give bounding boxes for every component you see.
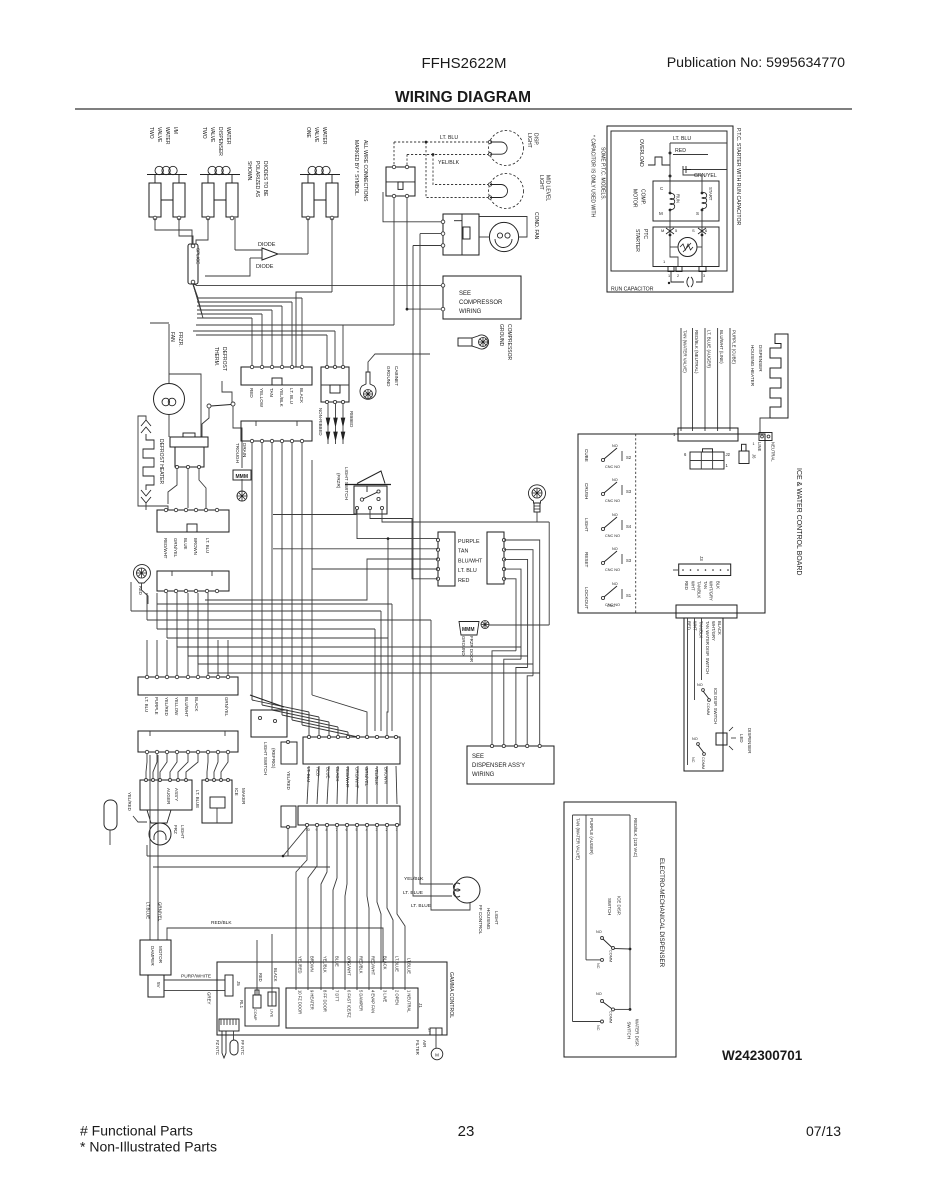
svg-text:LT. BLU: LT. BLU bbox=[144, 697, 149, 712]
svg-text:LINE: LINE bbox=[757, 442, 762, 452]
svg-text:TAN/BLK: TAN/BLK bbox=[699, 621, 704, 638]
svg-text:LIGHT SWITCH: LIGHT SWITCH bbox=[263, 742, 268, 775]
svg-text:RED/WHT: RED/WHT bbox=[163, 538, 168, 559]
svg-text:DISPENSER: DISPENSER bbox=[758, 345, 763, 372]
svg-text:LT. BLU: LT. BLU bbox=[289, 388, 294, 404]
svg-text:* Non-Illustrated Parts: * Non-Illustrated Parts bbox=[80, 1139, 217, 1155]
svg-text:DRAIN: DRAIN bbox=[242, 443, 247, 457]
svg-text:ORG/WHT: ORG/WHT bbox=[347, 956, 352, 976]
svg-text:FFHS2622M: FFHS2622M bbox=[421, 55, 506, 72]
svg-text:THERM.: THERM. bbox=[213, 347, 219, 366]
svg-text:COMM: COMM bbox=[609, 950, 613, 962]
svg-text:POLARIZED AS: POLARIZED AS bbox=[254, 161, 260, 198]
svg-text:FILTER: FILTER bbox=[415, 1040, 420, 1055]
svg-text:J3: J3 bbox=[699, 556, 704, 561]
svg-text:S1: S1 bbox=[626, 593, 632, 598]
svg-text:VALVE: VALVE bbox=[209, 127, 215, 143]
svg-text:(REFRIG): (REFRIG) bbox=[271, 748, 276, 769]
svg-text:DEFROST: DEFROST bbox=[221, 347, 227, 371]
svg-text:ORG/WHT: ORG/WHT bbox=[355, 767, 360, 789]
svg-text:MMM: MMM bbox=[462, 627, 475, 633]
svg-text:MOTOR: MOTOR bbox=[632, 189, 638, 208]
svg-text:WIRING DIAGRAM: WIRING DIAGRAM bbox=[395, 89, 531, 106]
svg-text:ICE DISP. SWITCH: ICE DISP. SWITCH bbox=[713, 688, 718, 724]
svg-text:RED/BLK: RED/BLK bbox=[211, 920, 232, 926]
svg-text:WIRING: WIRING bbox=[459, 309, 482, 315]
svg-text:SWITCH: SWITCH bbox=[607, 898, 612, 915]
svg-text:S: S bbox=[696, 211, 699, 216]
svg-text:RED/BLK (NEUTRAL): RED/BLK (NEUTRAL) bbox=[694, 330, 699, 374]
svg-text:NC: NC bbox=[691, 757, 695, 763]
svg-text:BLU/WHT (LINE): BLU/WHT (LINE) bbox=[719, 330, 724, 364]
svg-text:PTC: PTC bbox=[642, 229, 648, 239]
svg-text:RED: RED bbox=[258, 973, 263, 982]
svg-text:BLACK: BLACK bbox=[717, 621, 722, 635]
svg-text:GREY: GREY bbox=[207, 992, 212, 1005]
svg-text:COMM: COMM bbox=[609, 1011, 613, 1023]
svg-text:PURPLE (CUBE): PURPLE (CUBE) bbox=[732, 330, 737, 364]
svg-text:RED: RED bbox=[675, 148, 686, 154]
svg-text:CRUSH: CRUSH bbox=[584, 483, 589, 499]
svg-text:COMPRESSOR: COMPRESSOR bbox=[459, 300, 503, 306]
svg-text:CNC NO: CNC NO bbox=[605, 534, 620, 538]
svg-text:DISPENSER ASS'Y: DISPENSER ASS'Y bbox=[472, 763, 525, 769]
svg-text:CUBE: CUBE bbox=[584, 449, 589, 462]
svg-text:GRN/YEL: GRN/YEL bbox=[158, 902, 163, 922]
svg-text:4 EVAP FAN: 4 EVAP FAN bbox=[371, 990, 376, 1013]
svg-text:GRN/YEL: GRN/YEL bbox=[173, 538, 178, 558]
svg-text:1: 1 bbox=[668, 274, 670, 278]
svg-text:NC: NC bbox=[596, 963, 600, 969]
svg-text:GROUND: GROUND bbox=[461, 636, 466, 656]
svg-text:DIODES TO BE: DIODES TO BE bbox=[262, 161, 268, 197]
svg-text:CNC: CNC bbox=[607, 604, 615, 608]
svg-text:NO: NO bbox=[612, 547, 618, 551]
svg-text:MARKED BY * SYMBOL.: MARKED BY * SYMBOL. bbox=[353, 140, 359, 196]
svg-text:RED/BLK (120 VAC): RED/BLK (120 VAC) bbox=[633, 818, 638, 858]
svg-text:GROUND: GROUND bbox=[498, 324, 504, 347]
svg-text:P.T.C. STARTER WITH RUN CAPACI: P.T.C. STARTER WITH RUN CAPACITOR bbox=[735, 128, 741, 225]
svg-text:BROWN: BROWN bbox=[310, 956, 315, 972]
svg-text:STARTER: STARTER bbox=[634, 229, 640, 252]
svg-text:VALVE: VALVE bbox=[156, 127, 162, 143]
svg-text:GRN/YEL: GRN/YEL bbox=[694, 173, 717, 179]
svg-text:CABINET: CABINET bbox=[394, 366, 399, 386]
svg-text:7 DTT: 7 DTT bbox=[335, 990, 340, 1002]
svg-text:FRZR DOOR: FRZR DOOR bbox=[469, 636, 474, 662]
svg-text:WHT: WHT bbox=[691, 581, 696, 591]
svg-text:* CAPACITOR IS ONLY USED WITH: * CAPACITOR IS ONLY USED WITH bbox=[590, 135, 596, 218]
svg-text:MOTOR: MOTOR bbox=[158, 946, 163, 964]
svg-text:TAN (WATER VALVE): TAN (WATER VALVE) bbox=[576, 818, 581, 860]
svg-text:LT. BLU: LT. BLU bbox=[440, 135, 458, 141]
svg-text:SOME P.T.C. MODELS.: SOME P.T.C. MODELS. bbox=[600, 147, 606, 200]
svg-text:TAN: TAN bbox=[703, 581, 708, 589]
svg-text:NO: NO bbox=[612, 582, 618, 586]
svg-text:J2: J2 bbox=[726, 452, 731, 457]
svg-text:2 OPEN: 2 OPEN bbox=[395, 990, 400, 1005]
svg-text:SWITCH: SWITCH bbox=[626, 1022, 631, 1039]
svg-text:TWO: TWO bbox=[201, 127, 207, 139]
svg-text:COMM: COMM bbox=[701, 757, 705, 769]
svg-text:(FRZR): (FRZR) bbox=[336, 473, 341, 489]
svg-text:TROUGH: TROUGH bbox=[235, 443, 240, 463]
svg-text:S: S bbox=[692, 228, 695, 233]
svg-text:YELLOW: YELLOW bbox=[174, 697, 179, 716]
svg-text:6 FAST ICE/FZ: 6 FAST ICE/FZ bbox=[347, 990, 352, 1018]
svg-text:BROWN: BROWN bbox=[384, 767, 389, 784]
svg-text:3 LIVE: 3 LIVE bbox=[383, 990, 388, 1003]
svg-text:NEUTRAL: NEUTRAL bbox=[771, 442, 776, 462]
svg-text:DISPENSER: DISPENSER bbox=[217, 127, 223, 156]
svg-text:WHT/GRY: WHT/GRY bbox=[709, 581, 714, 601]
svg-text:BLU/WHT: BLU/WHT bbox=[458, 558, 483, 564]
svg-text:AIR: AIR bbox=[422, 1040, 427, 1047]
svg-text:07/13: 07/13 bbox=[806, 1123, 841, 1139]
svg-text:W242300701: W242300701 bbox=[722, 1048, 803, 1063]
svg-text:COMM: COMM bbox=[706, 703, 710, 715]
svg-text:NC: NC bbox=[596, 1025, 600, 1031]
svg-text:RUN CAPACITOR: RUN CAPACITOR bbox=[611, 287, 654, 293]
svg-text:2: 2 bbox=[677, 274, 679, 278]
svg-text:ICE & WATER CONTROL BOARD: ICE & WATER CONTROL BOARD bbox=[795, 468, 802, 575]
svg-text:DIODE: DIODE bbox=[256, 264, 274, 270]
svg-text:9 HEATER: 9 HEATER bbox=[310, 990, 315, 1010]
svg-text:WIRING: WIRING bbox=[472, 772, 495, 778]
svg-text:YEL/BLK: YEL/BLK bbox=[404, 876, 424, 882]
svg-text:START: START bbox=[708, 187, 713, 201]
svg-text:LIGHT SWITCH: LIGHT SWITCH bbox=[344, 467, 349, 500]
svg-text:LIVE: LIVE bbox=[270, 1009, 274, 1018]
svg-text:J1: J1 bbox=[418, 1003, 423, 1008]
svg-text:NO: NO bbox=[697, 683, 703, 687]
svg-text:I/M: I/M bbox=[172, 127, 178, 134]
svg-text:GRN/YEL: GRN/YEL bbox=[224, 697, 229, 717]
svg-text:BLUE: BLUE bbox=[325, 767, 330, 779]
svg-text:SEE: SEE bbox=[472, 754, 484, 760]
svg-text:DISP.: DISP. bbox=[533, 133, 539, 145]
svg-text:SPLICE: SPLICE bbox=[196, 248, 201, 264]
svg-text:NO: NO bbox=[596, 930, 602, 934]
svg-text:BLK: BLK bbox=[716, 581, 721, 589]
svg-text:8 FF DOOR: 8 FF DOOR bbox=[323, 990, 328, 1012]
svg-text:TAN WATER DISP. SWITCH: TAN WATER DISP. SWITCH bbox=[705, 621, 710, 674]
svg-text:BLACK: BLACK bbox=[273, 968, 278, 982]
svg-text:LED: LED bbox=[739, 734, 744, 743]
svg-text:TAN: TAN bbox=[269, 388, 274, 397]
svg-text:CNC NO: CNC NO bbox=[605, 568, 620, 572]
svg-text:YELLOW: YELLOW bbox=[259, 388, 264, 408]
svg-text:COND. FAN: COND. FAN bbox=[533, 212, 539, 240]
svg-text:LIGHT: LIGHT bbox=[538, 175, 544, 190]
svg-text:YEL/RED: YEL/RED bbox=[127, 792, 132, 811]
svg-text:FZ NTC: FZ NTC bbox=[215, 1040, 220, 1055]
svg-text:RIBBED: RIBBED bbox=[349, 411, 354, 427]
svg-text:RL1: RL1 bbox=[239, 1000, 244, 1009]
svg-text:10 FZ DOOR: 10 FZ DOOR bbox=[298, 990, 303, 1014]
svg-text:LIGHT: LIGHT bbox=[180, 825, 185, 839]
svg-text:GAMMA CONTROL: GAMMA CONTROL bbox=[448, 972, 454, 1018]
svg-text:BROWN: BROWN bbox=[193, 538, 198, 555]
svg-text:LT. BLUE (AUGER): LT. BLUE (AUGER) bbox=[707, 330, 712, 369]
svg-text:ASS'Y: ASS'Y bbox=[174, 788, 179, 801]
svg-text:YEL/BLK: YEL/BLK bbox=[438, 160, 460, 166]
svg-text:1 NEUTRAL: 1 NEUTRAL bbox=[407, 990, 412, 1013]
svg-text:LIGHT: LIGHT bbox=[526, 133, 532, 148]
svg-text:WATER DISP.: WATER DISP. bbox=[635, 1019, 640, 1046]
svg-text:YEL/RED: YEL/RED bbox=[164, 697, 169, 716]
svg-text:NO: NO bbox=[612, 478, 618, 482]
svg-text:LT.BLUE: LT.BLUE bbox=[146, 902, 151, 919]
svg-text:LIGHT: LIGHT bbox=[494, 911, 499, 925]
svg-text:TAN/BLK: TAN/BLK bbox=[697, 581, 702, 598]
svg-text:PURPLE: PURPLE bbox=[458, 539, 480, 545]
svg-text:LT. BLU: LT. BLU bbox=[673, 136, 691, 142]
svg-text:LT. BLUE: LT. BLUE bbox=[195, 790, 200, 808]
svg-text:TAN: TAN bbox=[458, 549, 468, 555]
svg-text:DISPENSER: DISPENSER bbox=[747, 728, 752, 753]
svg-text:PURP/WHITE: PURP/WHITE bbox=[181, 974, 211, 980]
svg-text:LT. BLU: LT. BLU bbox=[205, 538, 210, 553]
svg-text:DAMPER: DAMPER bbox=[150, 946, 155, 966]
svg-text:M: M bbox=[435, 1053, 439, 1058]
svg-text:LT. BLUE: LT. BLUE bbox=[411, 903, 431, 909]
svg-text:RESET: RESET bbox=[584, 552, 589, 568]
svg-text:BLU/WHT: BLU/WHT bbox=[184, 697, 189, 717]
svg-text:# Functional Parts: # Functional Parts bbox=[80, 1123, 193, 1139]
svg-text:YEL/BLK: YEL/BLK bbox=[279, 388, 284, 408]
svg-text:Publication No: 5995634770: Publication No: 5995634770 bbox=[667, 55, 845, 71]
svg-text:BLACK: BLACK bbox=[299, 388, 304, 404]
svg-text:BLUE: BLUE bbox=[335, 956, 340, 967]
svg-text:FF CONTROL: FF CONTROL bbox=[478, 905, 483, 935]
svg-text:3: 3 bbox=[703, 274, 705, 278]
svg-text:5 DAMPER: 5 DAMPER bbox=[359, 990, 364, 1011]
svg-text:LOCKOUT: LOCKOUT bbox=[584, 587, 589, 609]
svg-text:J5: J5 bbox=[236, 981, 241, 986]
svg-text:COMPRESSOR: COMPRESSOR bbox=[506, 324, 512, 361]
svg-text:23: 23 bbox=[458, 1123, 475, 1140]
svg-text:ICE DISP.: ICE DISP. bbox=[617, 896, 622, 915]
svg-text:S4: S4 bbox=[626, 524, 632, 529]
svg-text:NO: NO bbox=[612, 513, 618, 517]
svg-text:MID LEVEL: MID LEVEL bbox=[545, 175, 551, 201]
svg-text:YEL/RED: YEL/RED bbox=[298, 956, 303, 974]
svg-text:RED: RED bbox=[684, 581, 689, 590]
svg-text:BLACK: BLACK bbox=[194, 697, 199, 711]
svg-text:HOUSING: HOUSING bbox=[486, 908, 491, 930]
svg-text:VALVE: VALVE bbox=[313, 127, 319, 143]
svg-text:YEL/BLK: YEL/BLK bbox=[374, 767, 379, 785]
svg-text:CNC NO: CNC NO bbox=[605, 499, 620, 503]
svg-text:AUGER: AUGER bbox=[166, 788, 171, 805]
svg-text:M: M bbox=[661, 228, 664, 233]
svg-text:HOUSING HEATER: HOUSING HEATER bbox=[750, 345, 755, 387]
svg-text:TAN (WATER VALVE): TAN (WATER VALVE) bbox=[683, 330, 688, 373]
svg-text:WHT: WHT bbox=[693, 621, 698, 631]
svg-text:RED: RED bbox=[458, 578, 469, 584]
svg-text:NO: NO bbox=[596, 992, 602, 996]
svg-text:FRZR.: FRZR. bbox=[177, 332, 183, 347]
svg-text:COMP.: COMP. bbox=[640, 189, 646, 205]
svg-text:WATER: WATER bbox=[164, 127, 170, 145]
svg-text:DIODE: DIODE bbox=[258, 242, 276, 248]
svg-text:ONE: ONE bbox=[305, 127, 311, 139]
svg-text:PURPLE (AUGER): PURPLE (AUGER) bbox=[589, 818, 594, 855]
svg-text:ICE: ICE bbox=[234, 788, 239, 796]
svg-text:RED/WHT: RED/WHT bbox=[371, 956, 376, 976]
svg-text:5V: 5V bbox=[156, 982, 161, 989]
svg-text:WHT/GRY: WHT/GRY bbox=[711, 621, 716, 641]
svg-text:YEL/RED: YEL/RED bbox=[286, 771, 291, 790]
svg-text:FF NTC: FF NTC bbox=[240, 1040, 245, 1055]
svg-text:MAKER: MAKER bbox=[241, 788, 246, 805]
svg-text:1: 1 bbox=[753, 442, 755, 446]
svg-text:OVERLOAD: OVERLOAD bbox=[638, 139, 644, 167]
svg-text:RED/BLK: RED/BLK bbox=[359, 956, 364, 974]
svg-text:LT. BLU: LT. BLU bbox=[458, 568, 477, 574]
svg-text:COMP: COMP bbox=[253, 1009, 257, 1021]
svg-text:SHOWN.: SHOWN. bbox=[246, 161, 252, 182]
svg-text:PURPLE: PURPLE bbox=[154, 697, 159, 715]
svg-text:BLUE: BLUE bbox=[183, 538, 188, 550]
svg-text:M: M bbox=[659, 211, 663, 216]
svg-text:S2: S2 bbox=[626, 455, 632, 460]
svg-text:ALL WIRE CONNECTIONS: ALL WIRE CONNECTIONS bbox=[362, 140, 368, 202]
svg-text:TWO: TWO bbox=[148, 127, 154, 139]
svg-text:DEFROST HEATER: DEFROST HEATER bbox=[158, 439, 164, 484]
svg-text:NON-RIBBED: NON-RIBBED bbox=[318, 408, 323, 436]
svg-text:J6: J6 bbox=[752, 454, 757, 459]
svg-text:RED: RED bbox=[249, 388, 254, 398]
svg-text:NO: NO bbox=[692, 737, 698, 741]
svg-text:FAN: FAN bbox=[169, 332, 175, 342]
svg-text:RUN: RUN bbox=[676, 194, 681, 203]
svg-text:LIGHT: LIGHT bbox=[584, 518, 589, 532]
svg-text:GROUND: GROUND bbox=[386, 366, 391, 387]
svg-text:LT.BLUE: LT.BLUE bbox=[407, 958, 412, 974]
svg-text:BLACK: BLACK bbox=[383, 956, 388, 970]
svg-text:NO: NO bbox=[612, 444, 618, 448]
svg-text:SEE: SEE bbox=[459, 291, 471, 297]
svg-text:ELECTRO-MECHANICAL DISPENSER: ELECTRO-MECHANICAL DISPENSER bbox=[658, 858, 665, 968]
svg-text:WATER: WATER bbox=[225, 127, 231, 145]
svg-text:WATER: WATER bbox=[321, 127, 327, 145]
svg-text:YEL/BLK: YEL/BLK bbox=[323, 956, 328, 973]
svg-text:CNC NO: CNC NO bbox=[605, 465, 620, 469]
svg-text:LT.BLUE: LT.BLUE bbox=[395, 956, 400, 972]
svg-text:FRZ: FRZ bbox=[173, 825, 178, 834]
svg-text:S3: S3 bbox=[626, 558, 632, 563]
svg-text:S3: S3 bbox=[626, 489, 632, 494]
